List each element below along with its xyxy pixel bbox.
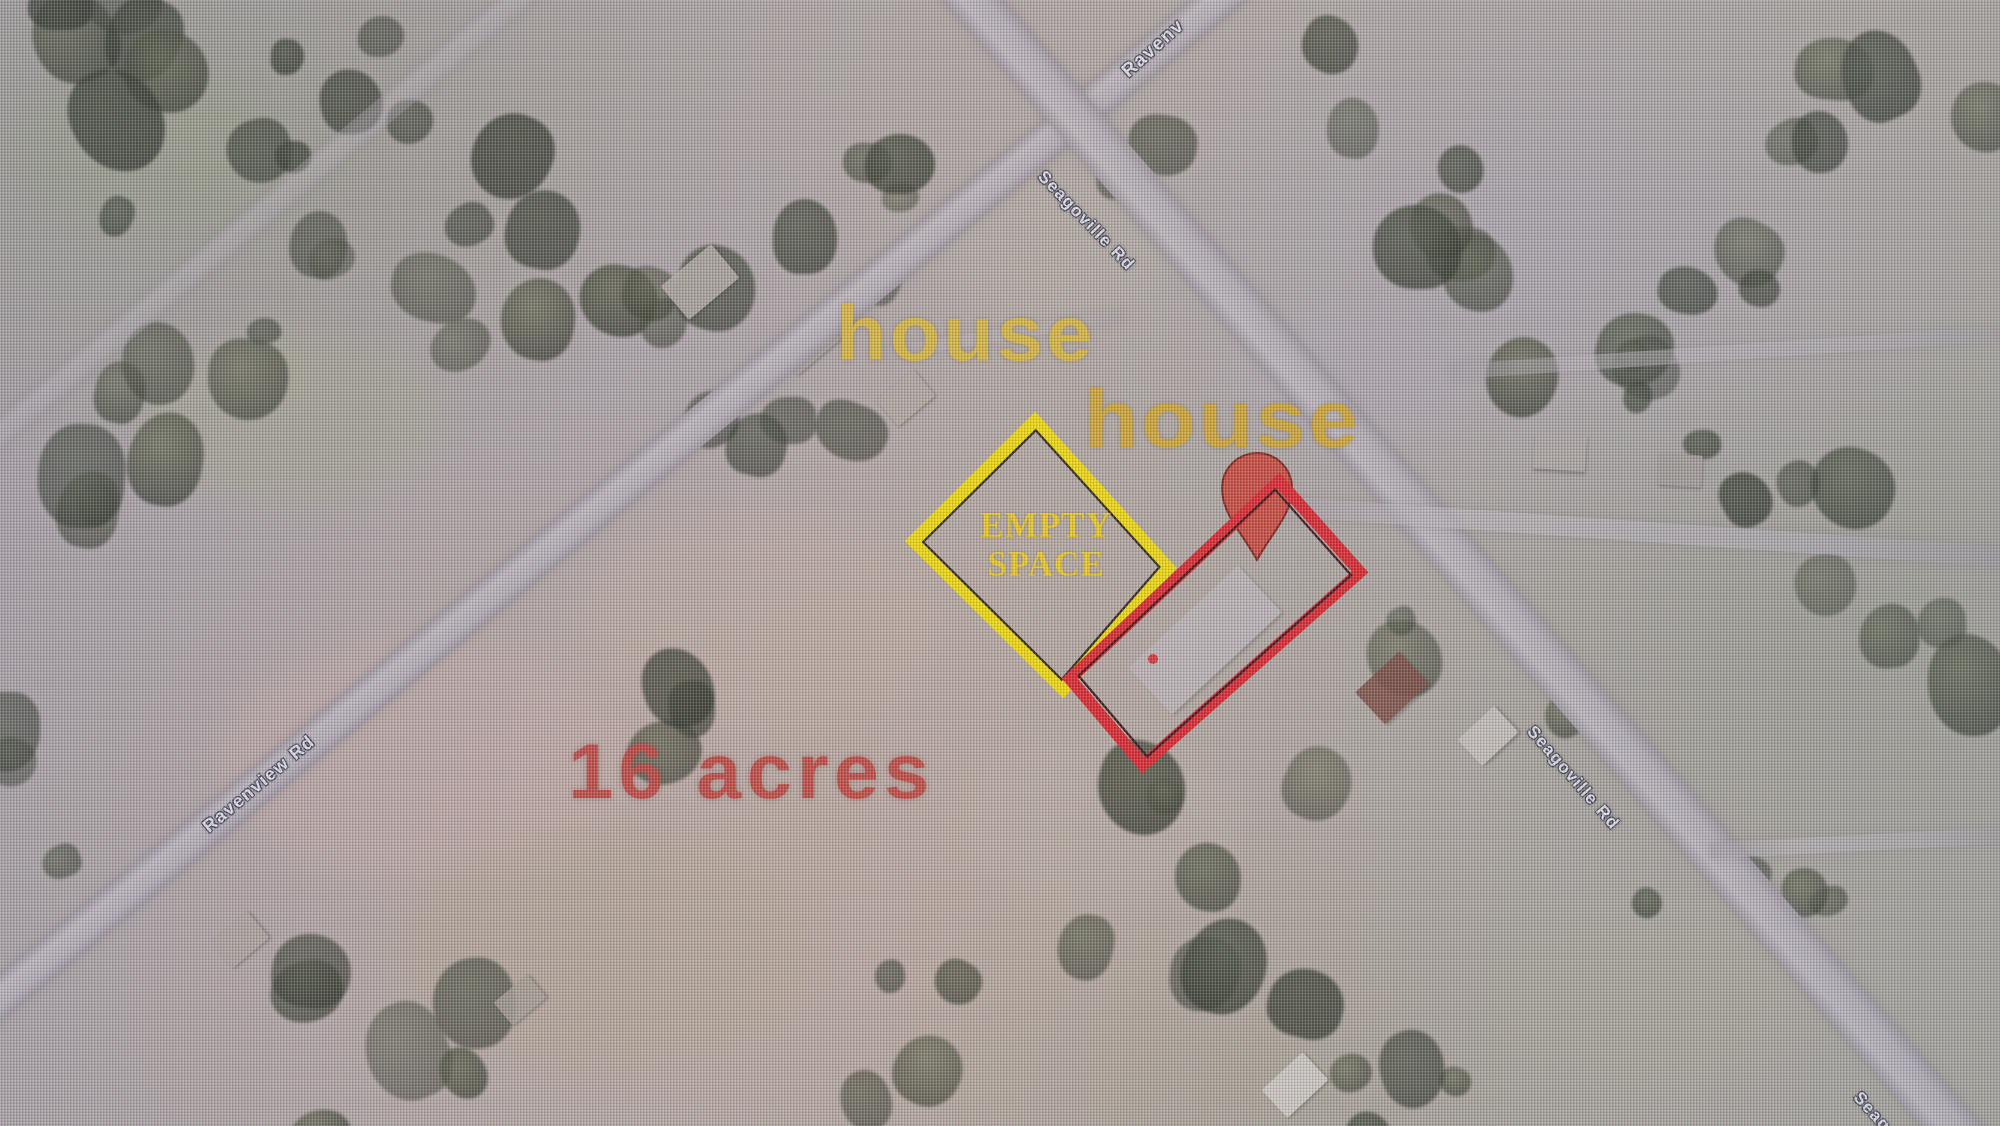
empty-space-annotation: EMPTY SPACE [946,506,1146,584]
acreage-annotation: 16 acres [568,726,934,817]
empty-space-line2: SPACE [946,545,1146,584]
empty-space-line1: EMPTY [946,506,1146,545]
house-annotation-1: house [836,288,1095,379]
house-annotation-2: house [1084,372,1361,466]
aerial-map-photo: Ravenv Seagoville Rd Ravenview Rd Seagov… [0,0,2000,1126]
